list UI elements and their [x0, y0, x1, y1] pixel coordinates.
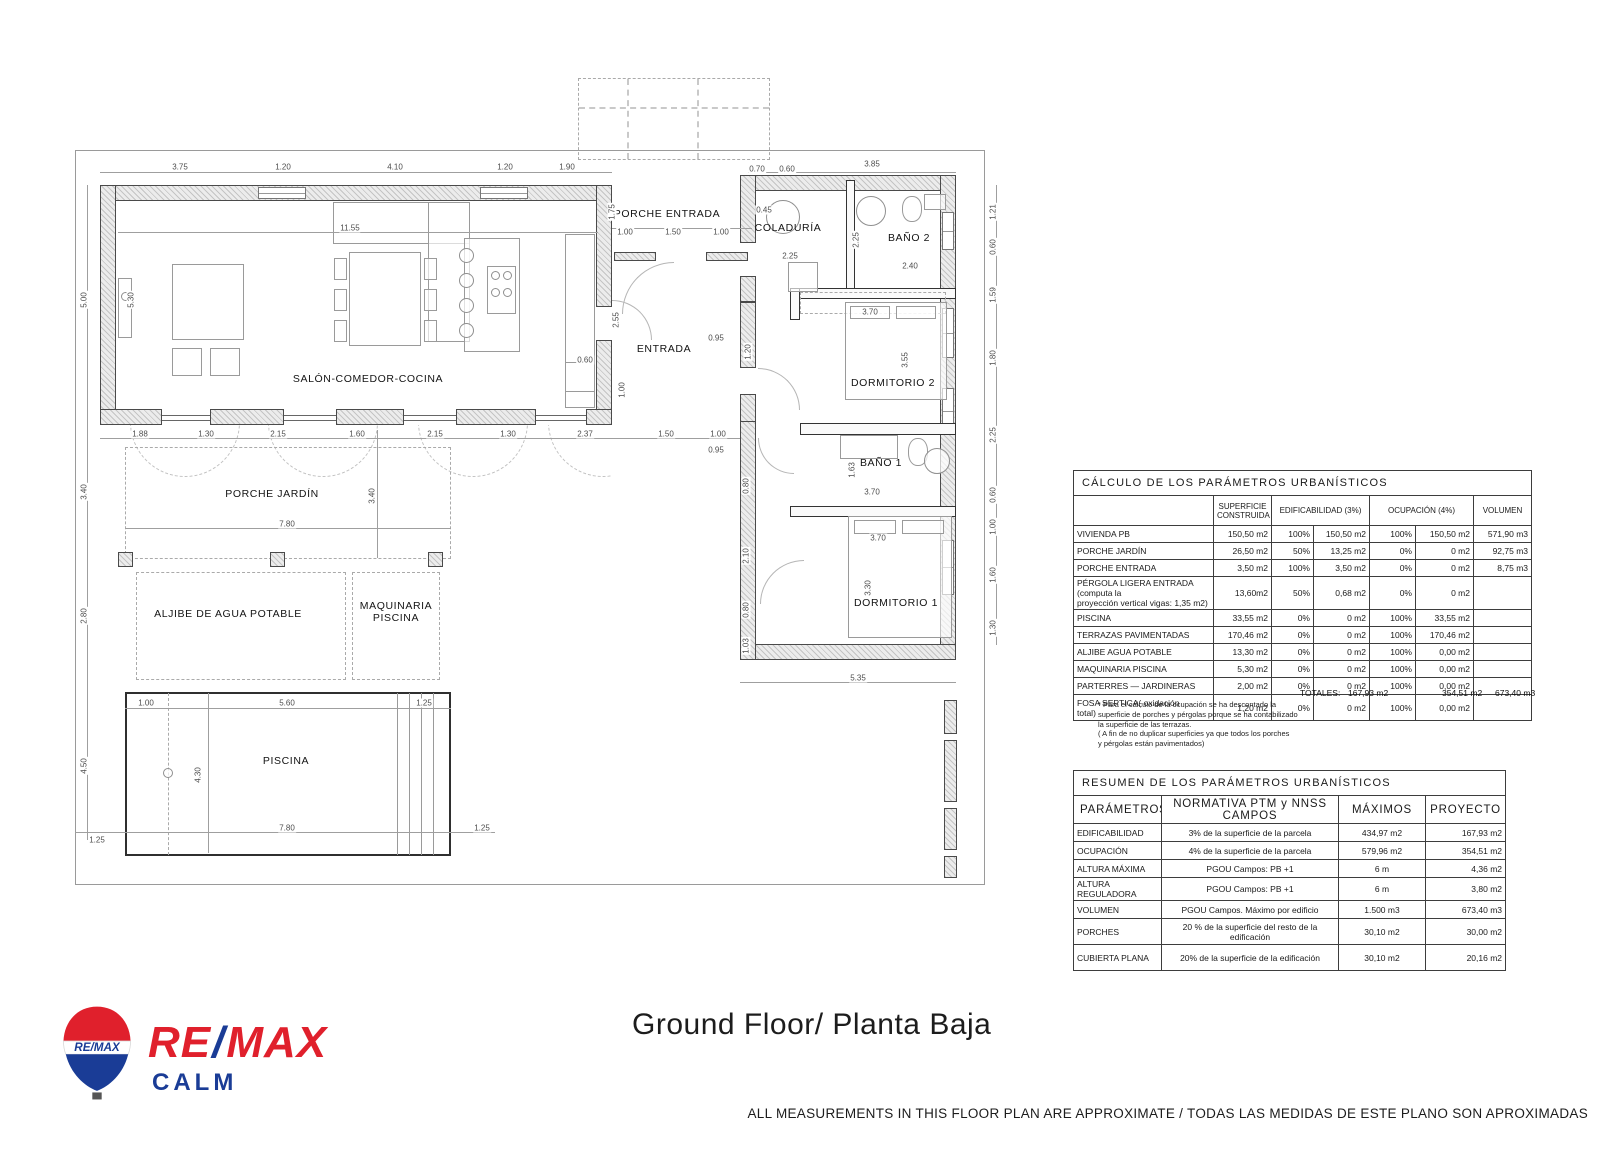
sheet: SALÓN-COMEDOR-COCINAPORCHE ENTRADACOLADU… [0, 0, 1600, 1153]
window [480, 187, 528, 199]
fence-segment [944, 740, 957, 802]
table-cell [1474, 610, 1532, 627]
table-cell: 170,46 m2 [1214, 627, 1272, 644]
table-cell: 0% [1370, 543, 1416, 560]
table-cell: 30,00 m2 [1426, 919, 1506, 945]
dim-label: 1.00 [616, 228, 634, 237]
window [942, 212, 954, 250]
resumen-table: RESUMEN DE LOS PARÁMETROS URBANÍSTICOS P… [1073, 770, 1506, 971]
pool-ladder [163, 768, 173, 778]
dim-label: 5.30 [127, 291, 136, 309]
table-cell: PGOU Campos: PB +1 [1162, 860, 1339, 878]
dim-label: 1.60 [989, 566, 998, 584]
table-cell: PGOU Campos. Máximo por edificio [1162, 901, 1339, 919]
dim-label: 3.40 [368, 487, 377, 505]
table-cell: 33,55 m2 [1416, 610, 1474, 627]
table-cell: 170,46 m2 [1416, 627, 1474, 644]
dim-label: 1.00 [709, 430, 727, 439]
dim-label: 1.50 [664, 228, 682, 237]
wall [740, 420, 756, 660]
totales-ocupacion: 354,51 m2 [1442, 688, 1482, 698]
burner [503, 288, 512, 297]
remax-logo: RE/MAX RE/MAX CALM [58, 1005, 378, 1115]
table-cell: 50% [1272, 543, 1314, 560]
chair [424, 289, 437, 311]
calc-table-title: CÁLCULO DE LOS PARÁMETROS URBANÍSTICOS [1074, 471, 1532, 496]
totales-volumen: 673,40 m3 [1495, 688, 1535, 698]
table-cell: 33,55 m2 [1214, 610, 1272, 627]
dim-label: 1.25 [88, 836, 106, 845]
dim-label: 0.60 [989, 238, 998, 256]
table-cell: 434,97 m2 [1339, 824, 1426, 842]
porch-step [614, 252, 656, 261]
cabinet [788, 262, 818, 292]
dim-line [87, 185, 88, 840]
dim-line [377, 430, 378, 558]
table-cell: ALTURA REGULADORA [1074, 878, 1162, 901]
dim-label: 1.20 [496, 163, 514, 172]
maquinaria-area [352, 572, 440, 680]
room-label-bano-1: BAÑO 1 [860, 457, 902, 469]
table-cell: 3,80 m2 [1426, 878, 1506, 901]
dim-label: 3.30 [864, 579, 873, 597]
pillar [586, 409, 612, 425]
table-cell: 150,50 m2 [1416, 526, 1474, 543]
window [258, 187, 306, 199]
dim-label: 1.90 [558, 163, 576, 172]
dim-label: 1.20 [274, 163, 292, 172]
dim-line [208, 693, 209, 853]
room-label-bano-2: BAÑO 2 [888, 232, 930, 244]
dim-label: 2.25 [989, 426, 998, 444]
pillow [902, 520, 944, 534]
wall [100, 185, 116, 425]
wordmark-re: RE [148, 1018, 211, 1067]
room-label-piscina: PISCINA [263, 755, 309, 767]
table-cell: PÉRGOLA LIGERA ENTRADA (computa la proye… [1074, 577, 1214, 610]
dim-label: 1.88 [131, 430, 149, 439]
dim-label: 2.55 [612, 311, 621, 329]
armchair [172, 348, 202, 376]
table-cell: 30,10 m2 [1339, 945, 1426, 971]
svg-text:RE/MAX: RE/MAX [74, 1041, 121, 1054]
table-cell: 13,30 m2 [1214, 644, 1272, 661]
dim-label: 3.70 [863, 488, 881, 497]
wordmark-max: MAX [226, 1018, 327, 1067]
burner [491, 271, 500, 280]
dim-label: 0.80 [742, 601, 751, 619]
table-cell: 50% [1272, 577, 1314, 610]
dim-line [125, 708, 451, 709]
table-cell: 1.500 m3 [1339, 901, 1426, 919]
table-cell: 0% [1272, 661, 1314, 678]
table-cell: 100% [1370, 661, 1416, 678]
table-cell: 0 m2 [1314, 644, 1370, 661]
table-cell: PISCINA [1074, 610, 1214, 627]
table-cell: 100% [1370, 627, 1416, 644]
pool-step [421, 693, 422, 855]
table-cell: 0 m2 [1416, 543, 1474, 560]
table-cell: 0 m2 [1416, 560, 1474, 577]
dim-label: 0.80 [742, 477, 751, 495]
porch-step [706, 252, 748, 261]
remax-wordmark: RE/MAX [148, 1021, 327, 1065]
calc-col-edificabilidad: EDIFICABILIDAD (3%) [1272, 496, 1370, 526]
table-cell: 20% de la superficie de la edificación [1162, 945, 1339, 971]
calc-col-ocupacion: OCUPACIÓN (4%) [1370, 496, 1474, 526]
resumen-col-parametros: PARÁMETROS [1074, 796, 1162, 824]
table-cell: ALTURA MÁXIMA [1074, 860, 1162, 878]
fence-segment [944, 808, 957, 850]
pool-step [433, 693, 434, 855]
dim-label: 4.30 [194, 766, 203, 784]
table-cell: 6 m [1339, 878, 1426, 901]
table-cell: PARTERRES — JARDINERAS [1074, 678, 1214, 695]
table-cell: CUBIERTA PLANA [1074, 945, 1162, 971]
table-cell: 13,25 m2 [1314, 543, 1370, 560]
partition [800, 423, 956, 435]
dim-label: 2.15 [426, 430, 444, 439]
table-cell: 0,00 m2 [1416, 644, 1474, 661]
dim-label: 5.35 [849, 674, 867, 683]
table-cell: MAQUINARIA PISCINA [1074, 661, 1214, 678]
dim-label: 3.70 [869, 534, 887, 543]
column [118, 552, 133, 567]
room-label-porche-jardin: PORCHE JARDÍN [225, 488, 319, 500]
table-cell: VIVIENDA PB [1074, 526, 1214, 543]
table-cell: 0% [1272, 610, 1314, 627]
coffee-table [172, 264, 244, 340]
chair [424, 258, 437, 280]
dining-table [349, 252, 421, 346]
table-cell: 8,75 m3 [1474, 560, 1532, 577]
dim-label: 2.25 [852, 231, 861, 249]
room-label-entrada: ENTRADA [637, 343, 691, 355]
dim-label: 1.80 [989, 349, 998, 367]
dim-label: 0.95 [707, 334, 725, 343]
table-cell: 92,75 m3 [1474, 543, 1532, 560]
table-cell [1474, 661, 1532, 678]
dim-label: 1.59 [989, 286, 998, 304]
dim-line [100, 438, 740, 439]
table-cell: 150,50 m2 [1214, 526, 1272, 543]
dim-label: 1.20 [744, 343, 753, 361]
dim-label: 1.63 [848, 461, 857, 479]
dim-label: 7.80 [278, 824, 296, 833]
table-cell: 20 % de la superficie del resto de la ed… [1162, 919, 1339, 945]
dim-label: 4.10 [386, 163, 404, 172]
pillar [210, 409, 284, 425]
dim-label: 1.21 [989, 203, 998, 221]
dim-label: 11.55 [339, 224, 360, 233]
dim-label: 2.40 [901, 262, 919, 271]
dim-label: 1.30 [499, 430, 517, 439]
table-cell [1474, 644, 1532, 661]
dim-label: 0.60 [778, 165, 796, 174]
dim-label: 2.37 [576, 430, 594, 439]
room-label-dormitorio-2: DORMITORIO 2 [851, 377, 935, 389]
table-cell: 3% de la superficie de la parcela [1162, 824, 1339, 842]
resumen-col-normativa: NORMATIVA PTM y NNSS CAMPOS [1162, 796, 1339, 824]
table-cell: VOLUMEN [1074, 901, 1162, 919]
stool [459, 323, 474, 338]
table-cell: 100% [1370, 644, 1416, 661]
room-label-dormitorio-1: DORMITORIO 1 [854, 597, 938, 609]
pool-step [397, 693, 398, 855]
chair [334, 320, 347, 342]
dim-label: 1.00 [618, 381, 627, 399]
resumen-col-maximos: MÁXIMOS [1339, 796, 1426, 824]
shower [856, 196, 886, 226]
table-cell [1474, 695, 1532, 721]
dim-label: 1.50 [657, 430, 675, 439]
dim-label: 3.70 [861, 308, 879, 317]
table-cell: 0 m2 [1314, 627, 1370, 644]
totales-label: TOTALES: [1300, 688, 1340, 698]
chair [424, 320, 437, 342]
pool-step [409, 693, 410, 855]
dim-label: 3.75 [171, 163, 189, 172]
calc-footnote: * Para el cálculo de la ocupación se ha … [1098, 700, 1348, 749]
table-cell: 100% [1370, 610, 1416, 627]
room-label-aljibe: ALJIBE DE AGUA POTABLE [154, 608, 302, 620]
dim-line [100, 172, 612, 173]
wall [100, 185, 610, 201]
table-cell: 30,10 m2 [1339, 919, 1426, 945]
table-cell: 0 m2 [1314, 661, 1370, 678]
table-cell: 354,51 m2 [1426, 842, 1506, 860]
dim-label: 1.30 [989, 619, 998, 637]
table-cell: 167,93 m2 [1426, 824, 1506, 842]
room-label-porche-entrada: PORCHE ENTRADA [614, 208, 720, 220]
stool [459, 248, 474, 263]
dim-label: 1.60 [348, 430, 366, 439]
wall [740, 394, 756, 422]
pillar [336, 409, 404, 425]
calc-col-superficie: SUPERFICIE CONSTRUIDA [1214, 496, 1272, 526]
room-label-maquinaria: MAQUINARIA PISCINA [360, 600, 433, 624]
totales-superficie: 167,93 m2 [1348, 688, 1388, 698]
dim-label: 2.80 [80, 607, 89, 625]
table-cell: PORCHE ENTRADA [1074, 560, 1214, 577]
dim-label: 3.40 [80, 483, 89, 501]
dim-label: 5.60 [278, 699, 296, 708]
dim-label: 7.80 [278, 520, 296, 529]
dim-label: 0.95 [707, 446, 725, 455]
table-cell: 0% [1272, 627, 1314, 644]
table-cell: 13,60m2 [1214, 577, 1272, 610]
dim-label: 0.60 [576, 356, 594, 365]
calc-col-volumen: VOLUMEN [1474, 496, 1532, 526]
pergola-entrada [578, 78, 770, 160]
fence-segment [944, 856, 957, 878]
table-cell: 4% de la superficie de la parcela [1162, 842, 1339, 860]
dim-label: 0.70 [748, 165, 766, 174]
disclaimer: ALL MEASUREMENTS IN THIS FLOOR PLAN ARE … [747, 1106, 1588, 1121]
column [428, 552, 443, 567]
burner [491, 288, 500, 297]
resumen-table-title: RESUMEN DE LOS PARÁMETROS URBANÍSTICOS [1074, 771, 1506, 796]
table-cell: 579,96 m2 [1339, 842, 1426, 860]
dim-label: 1.03 [742, 637, 751, 655]
dim-label: 1.00 [989, 518, 998, 536]
table-cell: 0% [1272, 644, 1314, 661]
wall [740, 644, 956, 660]
shower [924, 448, 950, 474]
pillow [854, 520, 896, 534]
dim-label: 3.85 [863, 160, 881, 169]
stool [459, 298, 474, 313]
dim-label: 0.45 [755, 206, 773, 215]
column [270, 552, 285, 567]
table-cell: ALJIBE AGUA POTABLE [1074, 644, 1214, 661]
table-cell: 100% [1272, 526, 1314, 543]
fridge [565, 362, 595, 392]
table-cell: 4,36 m2 [1426, 860, 1506, 878]
stool [459, 273, 474, 288]
table-cell: 2,00 m2 [1214, 678, 1272, 695]
page-title: Ground Floor/ Planta Baja [632, 1008, 991, 1042]
table-cell [1474, 577, 1532, 610]
office-name: CALM [152, 1069, 237, 1097]
chair [334, 289, 347, 311]
dim-line [740, 682, 956, 683]
table-cell: PGOU Campos: PB +1 [1162, 878, 1339, 901]
calc-col-blank [1074, 496, 1214, 526]
table-cell: PORCHE JARDÍN [1074, 543, 1214, 560]
pillow [896, 306, 936, 319]
dim-label: 0.60 [989, 486, 998, 504]
table-cell: 100% [1370, 526, 1416, 543]
calc-table: CÁLCULO DE LOS PARÁMETROS URBANÍSTICOS S… [1073, 470, 1532, 721]
sink-counter [840, 435, 898, 459]
porche-jardin-area [125, 447, 451, 559]
table-cell: 0 m2 [1416, 577, 1474, 610]
room-label-coladuria: COLADURÍA [755, 222, 822, 234]
fence-segment [944, 700, 957, 734]
table-cell: 3,50 m2 [1314, 560, 1370, 577]
dim-label: 1.30 [197, 430, 215, 439]
table-cell [1474, 627, 1532, 644]
table-cell: 150,50 m2 [1314, 526, 1370, 543]
washbasin [924, 194, 946, 210]
table-cell: 3,50 m2 [1214, 560, 1272, 577]
table-cell: 0% [1370, 560, 1416, 577]
dim-label: 1.00 [712, 228, 730, 237]
table-cell: 100% [1272, 560, 1314, 577]
toilet [902, 196, 922, 222]
bed [848, 516, 952, 638]
table-cell: EDIFICABILIDAD [1074, 824, 1162, 842]
floor-plan: SALÓN-COMEDOR-COCINAPORCHE ENTRADACOLADU… [0, 0, 1050, 950]
table-cell: 6 m [1339, 860, 1426, 878]
aljibe-area [136, 572, 346, 680]
table-cell: PORCHES [1074, 919, 1162, 945]
armchair [210, 348, 240, 376]
pillar [100, 409, 162, 425]
dim-label: 1.75 [608, 203, 617, 221]
dim-label: 2.10 [742, 547, 751, 565]
remax-balloon-icon: RE/MAX [58, 1005, 136, 1105]
table-cell: TERRAZAS PAVIMENTADAS [1074, 627, 1214, 644]
table-cell: 20,16 m2 [1426, 945, 1506, 971]
dim-label: 3.55 [901, 351, 910, 369]
table-cell: 0,00 m2 [1416, 695, 1474, 721]
pillar [456, 409, 536, 425]
wall [740, 175, 756, 243]
dim-label: 2.25 [781, 252, 799, 261]
table-cell: OCUPACIÓN [1074, 842, 1162, 860]
room-label-salon: SALÓN-COMEDOR-COCINA [293, 373, 443, 385]
table-cell: 26,50 m2 [1214, 543, 1272, 560]
wall [740, 276, 756, 302]
dim-label: 1.00 [137, 699, 155, 708]
table-cell: 0,00 m2 [1416, 661, 1474, 678]
dim-label: 4.50 [80, 757, 89, 775]
table-cell: 5,30 m2 [1214, 661, 1272, 678]
table-cell: 100% [1370, 695, 1416, 721]
burner [503, 271, 512, 280]
table-cell: 0% [1370, 577, 1416, 610]
chair [334, 258, 347, 280]
dim-label: 1.25 [473, 824, 491, 833]
table-cell: 571,90 m3 [1474, 526, 1532, 543]
wordmark-slash: / [211, 1018, 226, 1067]
resumen-col-proyecto: PROYECTO [1426, 796, 1506, 824]
dim-label: 5.00 [80, 291, 89, 309]
table-cell: 0,68 m2 [1314, 577, 1370, 610]
dim-label: 2.15 [269, 430, 287, 439]
table-cell: 673,40 m3 [1426, 901, 1506, 919]
partition [790, 288, 800, 320]
table-cell: 0 m2 [1314, 610, 1370, 627]
dim-label: 1.25 [415, 699, 433, 708]
